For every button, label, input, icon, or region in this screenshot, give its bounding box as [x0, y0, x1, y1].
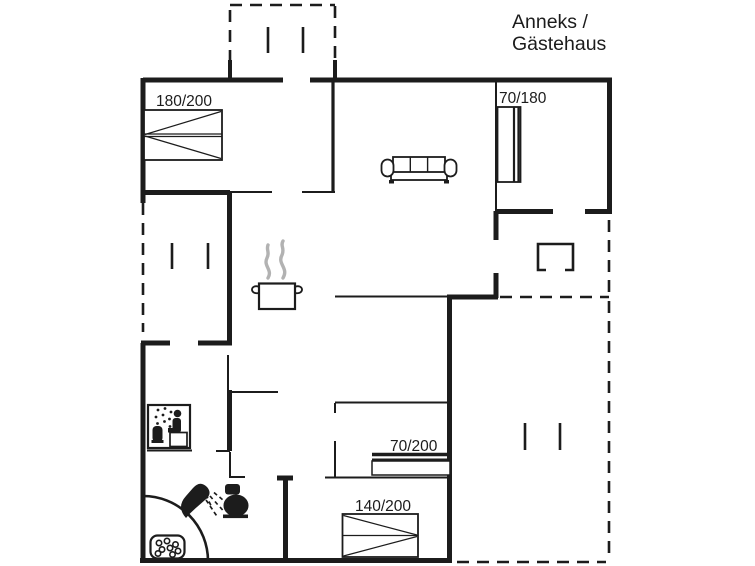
terrace-table-icon	[538, 244, 573, 270]
bath-bedroom-wall	[277, 478, 293, 561]
terrace-door-ticks	[525, 423, 560, 450]
bed-label-70-200: 70/200	[390, 438, 438, 455]
sauna-bench	[170, 433, 187, 447]
sofa-icon	[382, 157, 457, 184]
sauna-icon	[148, 405, 190, 448]
page-title-line2: Gästehaus	[512, 33, 607, 55]
floor-plan: Anneks / Gästehaus 180/200 70/180 70/200…	[0, 0, 755, 566]
right-lower-terrace-outline	[457, 301, 609, 562]
bed-label-180-200: 180/200	[156, 93, 212, 110]
toilet-base	[223, 515, 248, 519]
terrace-door-ticks	[268, 27, 303, 53]
toilet-bowl	[224, 495, 249, 517]
toilet-icon	[223, 484, 249, 518]
left-terrace	[143, 203, 208, 332]
top-terrace	[230, 5, 335, 80]
bed-label-70-180: 70/180	[499, 90, 547, 107]
single-bed-70-180-icon	[498, 107, 521, 182]
right-lower-terrace	[457, 301, 609, 562]
sauna-person-head	[174, 410, 182, 418]
steam-lines	[266, 241, 285, 278]
top-terrace-outline	[230, 5, 335, 62]
bed-label-140-200: 140/200	[355, 498, 411, 515]
right-upper-terrace	[500, 220, 609, 297]
pot-body	[259, 284, 295, 310]
terrace-door-ticks	[172, 243, 208, 269]
single-bed-70-200-icon	[372, 455, 450, 476]
double-bed-icon	[144, 110, 222, 160]
top-terrace-wall-stubs	[230, 60, 335, 80]
toilet-tank	[225, 484, 240, 495]
right-upper-terrace-outline	[500, 220, 609, 297]
double-bed-140-200-icon	[343, 514, 419, 557]
floor-plan-page: Anneks / Gästehaus 180/200 70/180 70/200…	[0, 0, 755, 566]
sauna-bottom-line	[147, 451, 230, 452]
sauna-stove	[153, 426, 163, 442]
cooking-pot-icon	[252, 241, 302, 309]
page-title-line1: Anneks /	[512, 11, 588, 33]
